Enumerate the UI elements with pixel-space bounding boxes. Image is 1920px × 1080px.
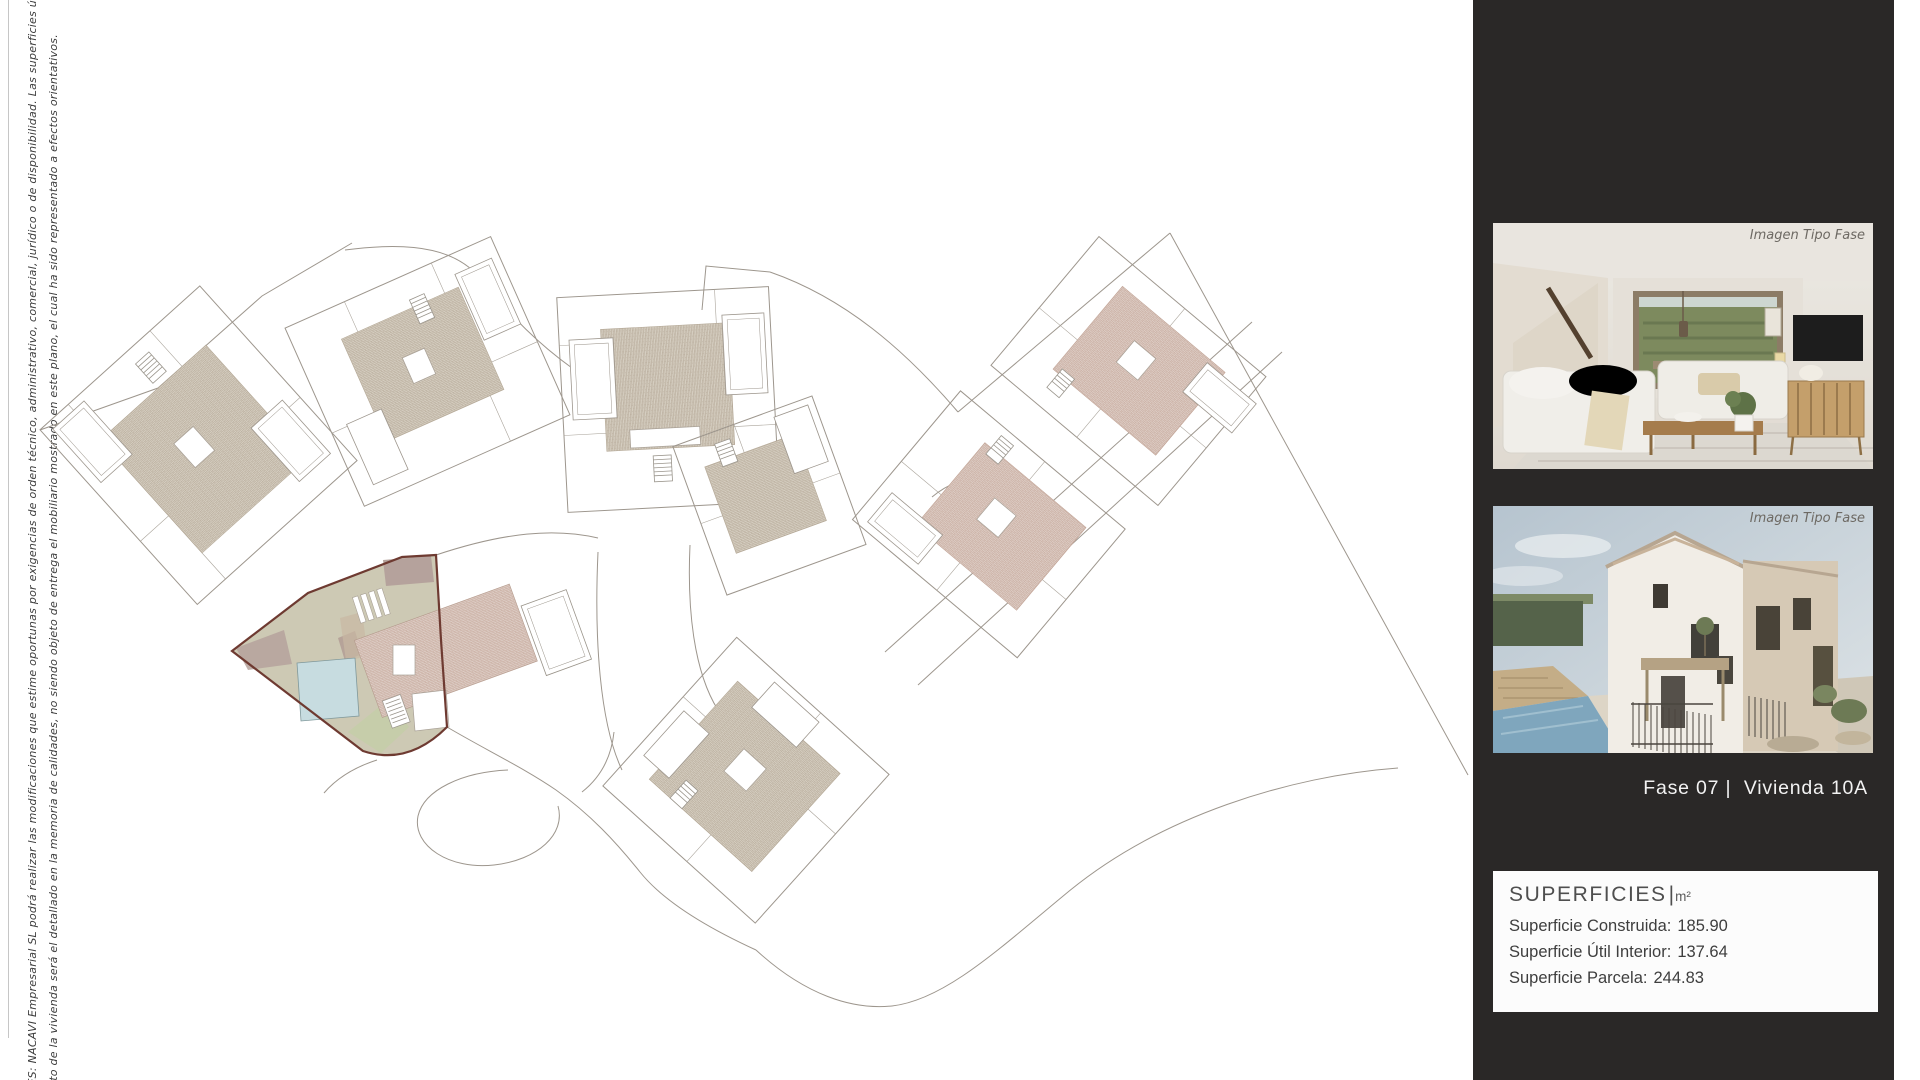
villa-unit-b: [285, 237, 570, 507]
villa-unit-a: [40, 286, 357, 605]
exterior-render-art: [1493, 506, 1873, 753]
superficie-util-row: Superficie Útil Interior: 137.64: [1509, 939, 1862, 965]
superficie-construida-row: Superficie Construida: 185.90: [1509, 913, 1862, 939]
superficies-divider: |: [1669, 883, 1674, 907]
interior-render-photo: Imagen Tipo Fase: [1493, 223, 1873, 469]
superficie-parcela-value: 244.83: [1654, 965, 1704, 991]
sidebar: Imagen Tipo Fase: [1473, 0, 1894, 1080]
site-plan-drawing: [0, 0, 1475, 1080]
villa-unit-e: [852, 391, 1125, 658]
roof-patio: [393, 645, 415, 675]
brochure-page: NES: NACAVI Empresarial SL podrá realiza…: [0, 0, 1920, 1080]
superficie-construida-value: 185.90: [1677, 913, 1727, 939]
superficie-construida-label: Superficie Construida:: [1509, 913, 1671, 939]
superficie-parcela-label: Superficie Parcela:: [1509, 965, 1648, 991]
villa-unit-g: [603, 637, 889, 923]
terrace-white: [412, 690, 449, 731]
superficie-util-value: 137.64: [1677, 939, 1727, 965]
photo-caption: Imagen Tipo Fase: [1750, 228, 1865, 243]
villa-unit-f: [991, 237, 1274, 512]
photo-caption: Imagen Tipo Fase: [1750, 511, 1865, 526]
swimming-pool: [297, 658, 359, 721]
unit-label: Fase 07 | Vivienda 10A: [1643, 777, 1868, 800]
superficies-title: SUPERFICIES: [1509, 883, 1667, 907]
superficies-unit: m²: [1675, 889, 1691, 904]
exterior-render-photo: Imagen Tipo Fase: [1493, 506, 1873, 753]
superficies-rows: Superficie Construida: 185.90 Superficie…: [1509, 913, 1862, 991]
superficies-box: SUPERFICIES | m² Superficie Construida: …: [1493, 871, 1878, 1012]
interior-render-art: [1493, 223, 1873, 469]
stairs-icon: [136, 352, 167, 383]
superficie-util-label: Superficie Útil Interior:: [1509, 939, 1671, 965]
stairs-icon: [653, 455, 672, 482]
superficies-title-row: SUPERFICIES | m²: [1509, 883, 1862, 907]
superficie-parcela-row: Superficie Parcela: 244.83: [1509, 965, 1862, 991]
highlighted-parcel-vivienda-10a: [232, 555, 537, 755]
